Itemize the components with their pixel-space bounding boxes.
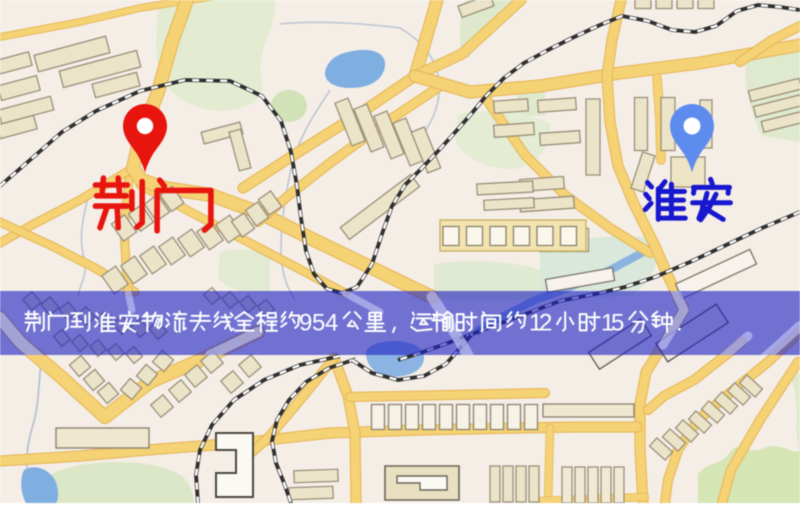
svg-text:.: . (676, 310, 683, 337)
svg-text:9: 9 (299, 310, 312, 337)
svg-text:2: 2 (539, 310, 552, 337)
svg-text:5: 5 (611, 310, 624, 337)
svg-text:4: 4 (325, 310, 338, 337)
svg-text:5: 5 (312, 310, 325, 337)
